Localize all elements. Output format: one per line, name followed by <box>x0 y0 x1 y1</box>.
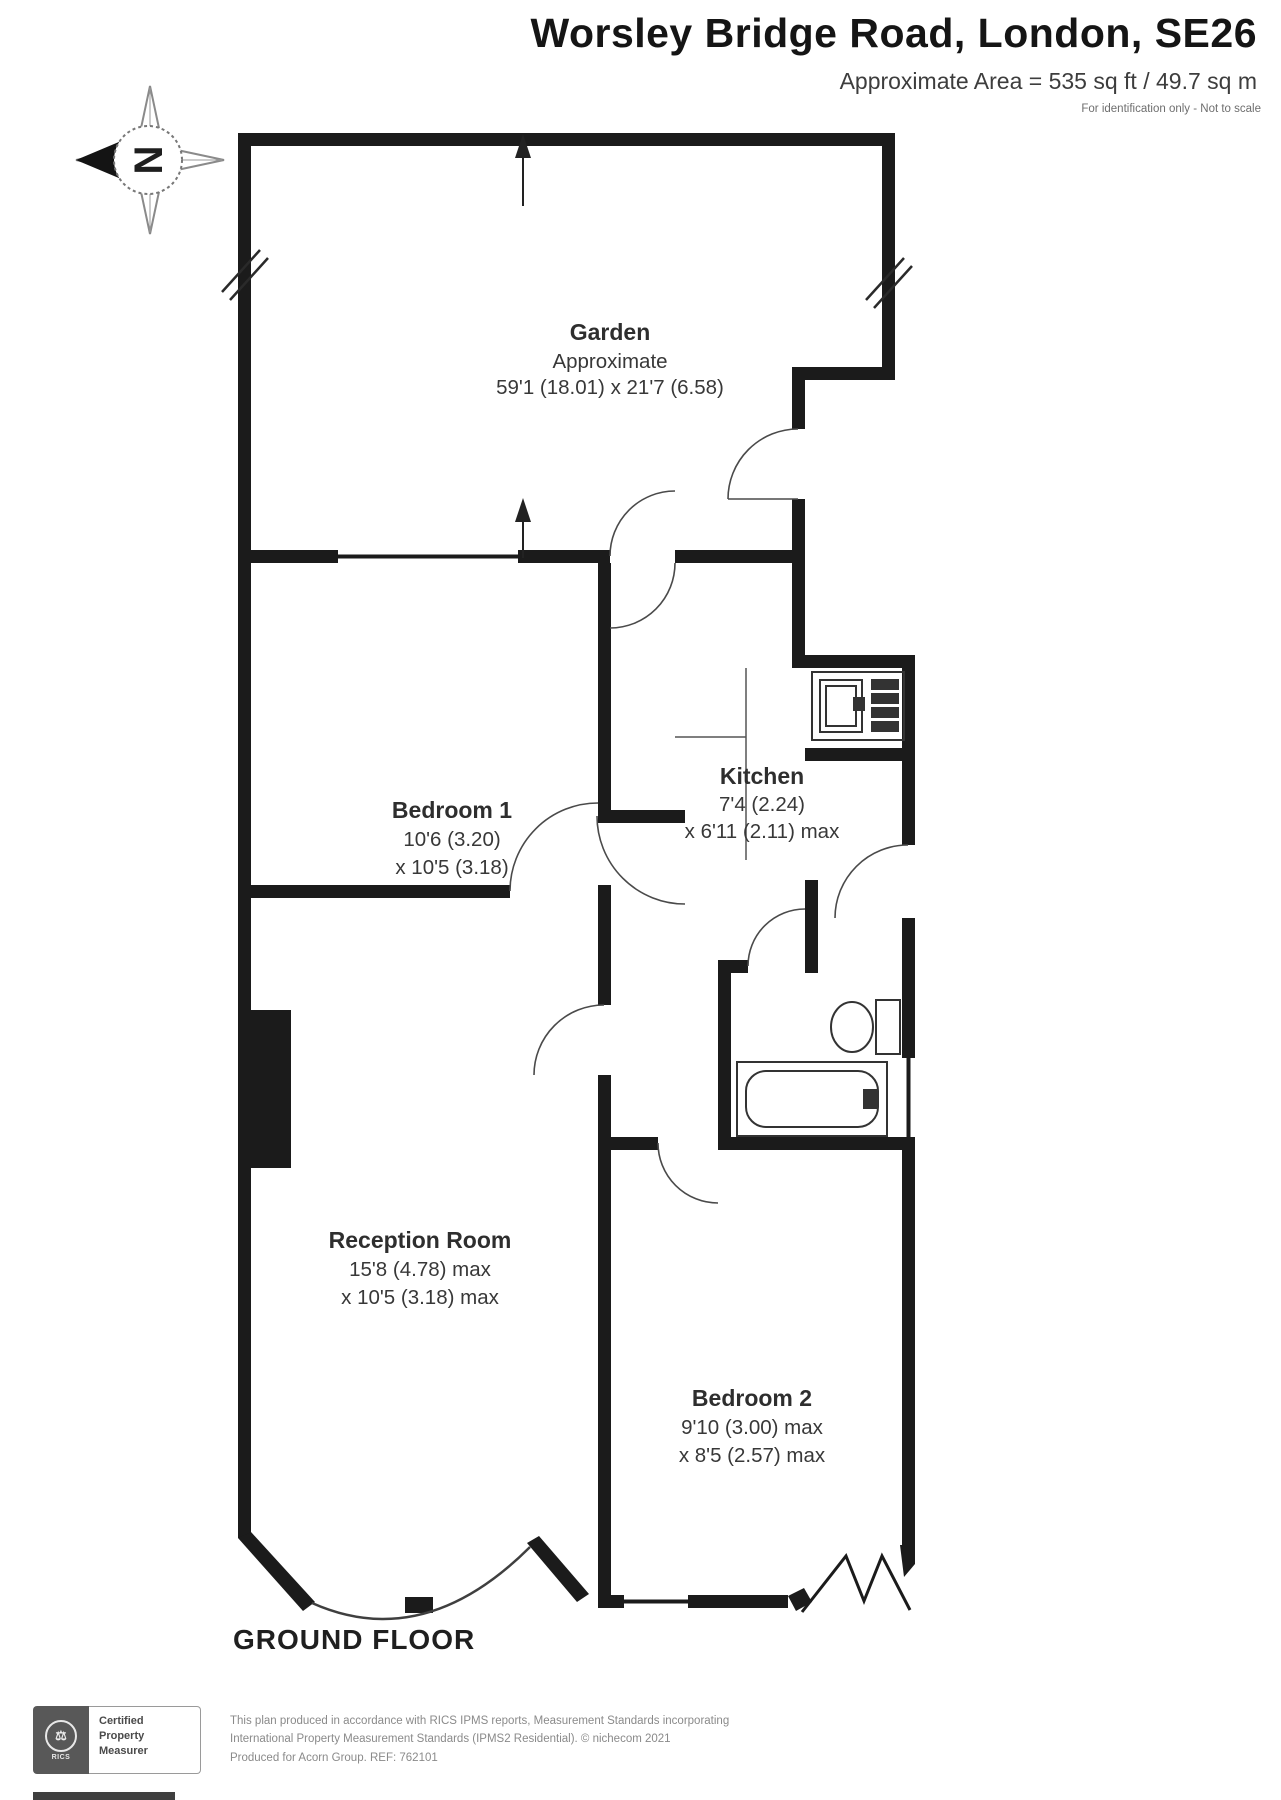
door-arc-bathroom <box>748 909 805 966</box>
compass-icon: N <box>76 86 224 234</box>
wall <box>238 550 251 1538</box>
chimney-breast <box>251 1010 291 1168</box>
kitchen-dims2: x 6'11 (2.11) max <box>685 820 840 843</box>
wall <box>805 880 818 973</box>
wall <box>238 550 338 563</box>
wall <box>598 885 611 1005</box>
bedroom1-label: Bedroom 1 10'6 (3.20) x 10'5 (3.18) <box>392 797 512 879</box>
entry-arrows <box>515 134 531 558</box>
cropped-bottom-element <box>33 1792 175 1800</box>
wall <box>688 1595 788 1608</box>
badge-emblem-text: RICS <box>52 1754 71 1761</box>
wall <box>598 1137 658 1150</box>
wall <box>792 655 915 668</box>
badge-line1: Certified <box>99 1714 200 1729</box>
wall <box>792 367 805 429</box>
bedroom1-dims1: 10'6 (3.20) <box>403 828 500 851</box>
disclaimer-line3: Produced for Acorn Group. REF: 762101 <box>230 1749 1040 1767</box>
badge-line3: Measurer <box>99 1744 200 1759</box>
wall <box>792 550 805 668</box>
badge-text-panel: Certified Property Measurer <box>89 1706 201 1774</box>
reception-name: Reception Room <box>329 1227 512 1253</box>
garden-label: Garden Approximate 59'1 (18.01) x 21'7 (… <box>496 319 724 399</box>
wall <box>718 960 731 1150</box>
reception-label: Reception Room 15'8 (4.78) max x 10'5 (3… <box>329 1227 512 1309</box>
door-arc-garden-gate <box>728 429 798 499</box>
bay-wall <box>788 1588 812 1611</box>
bedroom2-dims2: x 8'5 (2.57) max <box>679 1444 826 1467</box>
wall <box>598 563 611 815</box>
wall <box>805 748 915 761</box>
wall <box>238 133 251 563</box>
bath-icon <box>737 1062 887 1136</box>
wall <box>598 1595 624 1608</box>
door-arcs <box>510 429 908 1203</box>
break-marks <box>222 250 912 308</box>
badge-line2: Property <box>99 1729 200 1744</box>
arrow-head <box>515 498 531 522</box>
wall <box>792 367 895 380</box>
wall <box>598 1075 611 1608</box>
reception-dims2: x 10'5 (3.18) max <box>341 1286 499 1309</box>
bay-wall <box>900 1545 915 1577</box>
bedroom2-dims1: 9'10 (3.00) max <box>681 1416 824 1439</box>
door-arc-back-door <box>610 491 675 556</box>
disclaimer-line2: International Property Measurement Stand… <box>230 1730 1040 1748</box>
wall <box>902 918 915 1058</box>
garden-name: Garden <box>570 319 651 345</box>
wall <box>718 1137 915 1150</box>
rics-emblem-icon: ⚖ <box>45 1720 77 1752</box>
garden-qualifier: Approximate <box>552 350 667 373</box>
floorplan-svg: N <box>0 0 1281 1800</box>
garden-dims: 59'1 (18.01) x 21'7 (6.58) <box>496 376 724 399</box>
wall <box>238 133 895 146</box>
wall <box>518 550 610 563</box>
badge-emblem-panel: ⚖ RICS <box>33 1706 89 1774</box>
bedroom2-label: Bedroom 2 9'10 (3.00) max x 8'5 (2.57) m… <box>679 1385 826 1467</box>
kitchen-label: Kitchen 7'4 (2.24) x 6'11 (2.11) max <box>685 763 840 843</box>
bay-wall <box>527 1536 589 1602</box>
door-arc-kitchen-top <box>610 563 675 628</box>
footer-disclaimer: This plan produced in accordance with RI… <box>230 1712 1040 1767</box>
wall <box>675 550 805 563</box>
door-arc-bedroom1 <box>510 803 598 891</box>
bay-wall <box>405 1597 433 1613</box>
bedroom2-name: Bedroom 2 <box>692 1385 812 1411</box>
door-arc-side-entrance <box>835 845 908 918</box>
disclaimer-line1: This plan produced in accordance with RI… <box>230 1712 1040 1730</box>
wall <box>598 810 685 823</box>
bedroom1-dims2: x 10'5 (3.18) <box>395 856 508 879</box>
corner-bay-window <box>802 1556 910 1612</box>
wall <box>882 133 895 380</box>
floor-label: GROUND FLOOR <box>233 1624 475 1656</box>
reception-dims1: 15'8 (4.78) max <box>349 1258 492 1281</box>
bay-wall <box>238 1532 315 1611</box>
bedroom1-name: Bedroom 1 <box>392 797 512 823</box>
kitchen-dims1: 7'4 (2.24) <box>719 793 805 816</box>
door-arc-reception <box>534 1005 604 1075</box>
kitchen-name: Kitchen <box>720 763 804 789</box>
door-arc-bedroom2 <box>658 1143 718 1203</box>
toilet-icon <box>831 1000 900 1054</box>
certification-badge: ⚖ RICS Certified Property Measurer <box>33 1706 201 1774</box>
fixtures-layer <box>737 672 904 1136</box>
wall <box>238 885 510 898</box>
compass-north-label: N <box>127 146 171 175</box>
wall <box>902 1145 915 1555</box>
kitchen-sink-icon <box>812 672 904 740</box>
